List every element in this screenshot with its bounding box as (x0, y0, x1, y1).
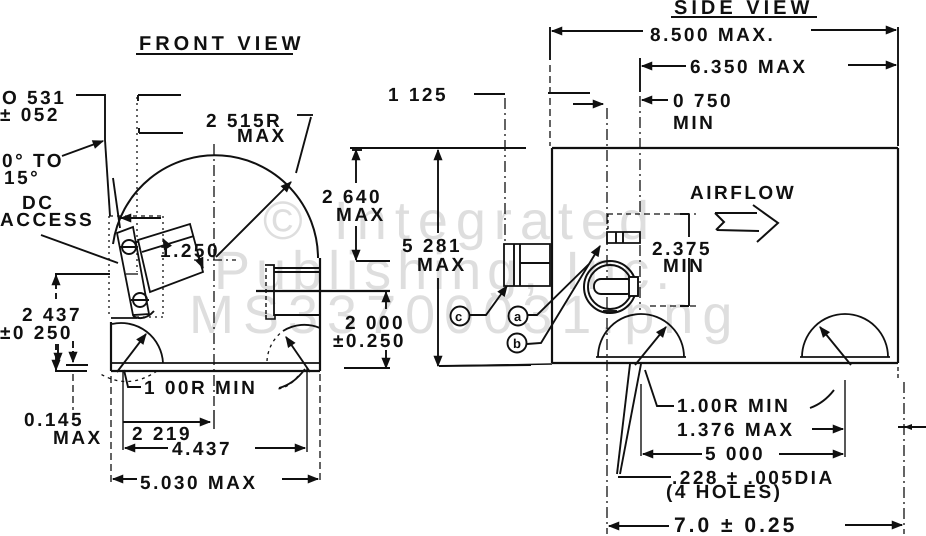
svg-text:1 125: 1 125 (388, 85, 448, 106)
svg-text:AIRFLOW: AIRFLOW (690, 183, 796, 204)
svg-text:a: a (514, 309, 522, 324)
svg-text:15°: 15° (4, 168, 40, 189)
svg-text:±0.250: ±0.250 (333, 331, 406, 352)
svg-text:MAX: MAX (237, 126, 287, 147)
svg-text:5 281: 5 281 (402, 236, 462, 257)
svg-text:b: b (513, 336, 521, 351)
svg-text:MAX: MAX (336, 205, 386, 226)
svg-text:0 750: 0 750 (673, 91, 733, 112)
svg-text:(4 HOLES): (4 HOLES) (666, 482, 782, 503)
svg-text:± 052: ± 052 (0, 105, 60, 126)
svg-text:MAX: MAX (417, 255, 467, 276)
svg-text:1 00R MIN: 1 00R MIN (144, 378, 257, 399)
svg-text:1.250: 1.250 (160, 241, 220, 262)
svg-text:FRONT VIEW: FRONT VIEW (139, 33, 305, 55)
svg-text:MIN: MIN (673, 113, 715, 134)
svg-text:1.376 MAX: 1.376 MAX (677, 420, 795, 441)
svg-text:5.030 MAX: 5.030 MAX (140, 473, 258, 494)
svg-text:MIN: MIN (663, 256, 705, 277)
svg-text:7.0 ± 0.25: 7.0 ± 0.25 (674, 514, 797, 536)
svg-text:MAX: MAX (53, 428, 103, 449)
svg-text:6.350 MAX: 6.350 MAX (690, 57, 808, 78)
svg-text:±0 250: ±0 250 (0, 323, 73, 344)
svg-text:1.00R MIN: 1.00R MIN (677, 396, 790, 417)
svg-text:4.437: 4.437 (172, 439, 232, 460)
svg-text:ACCESS: ACCESS (0, 210, 94, 231)
svg-text:c: c (455, 309, 462, 324)
svg-text:5 000: 5 000 (705, 444, 765, 465)
svg-text:8.500 MAX.: 8.500 MAX. (650, 25, 775, 46)
